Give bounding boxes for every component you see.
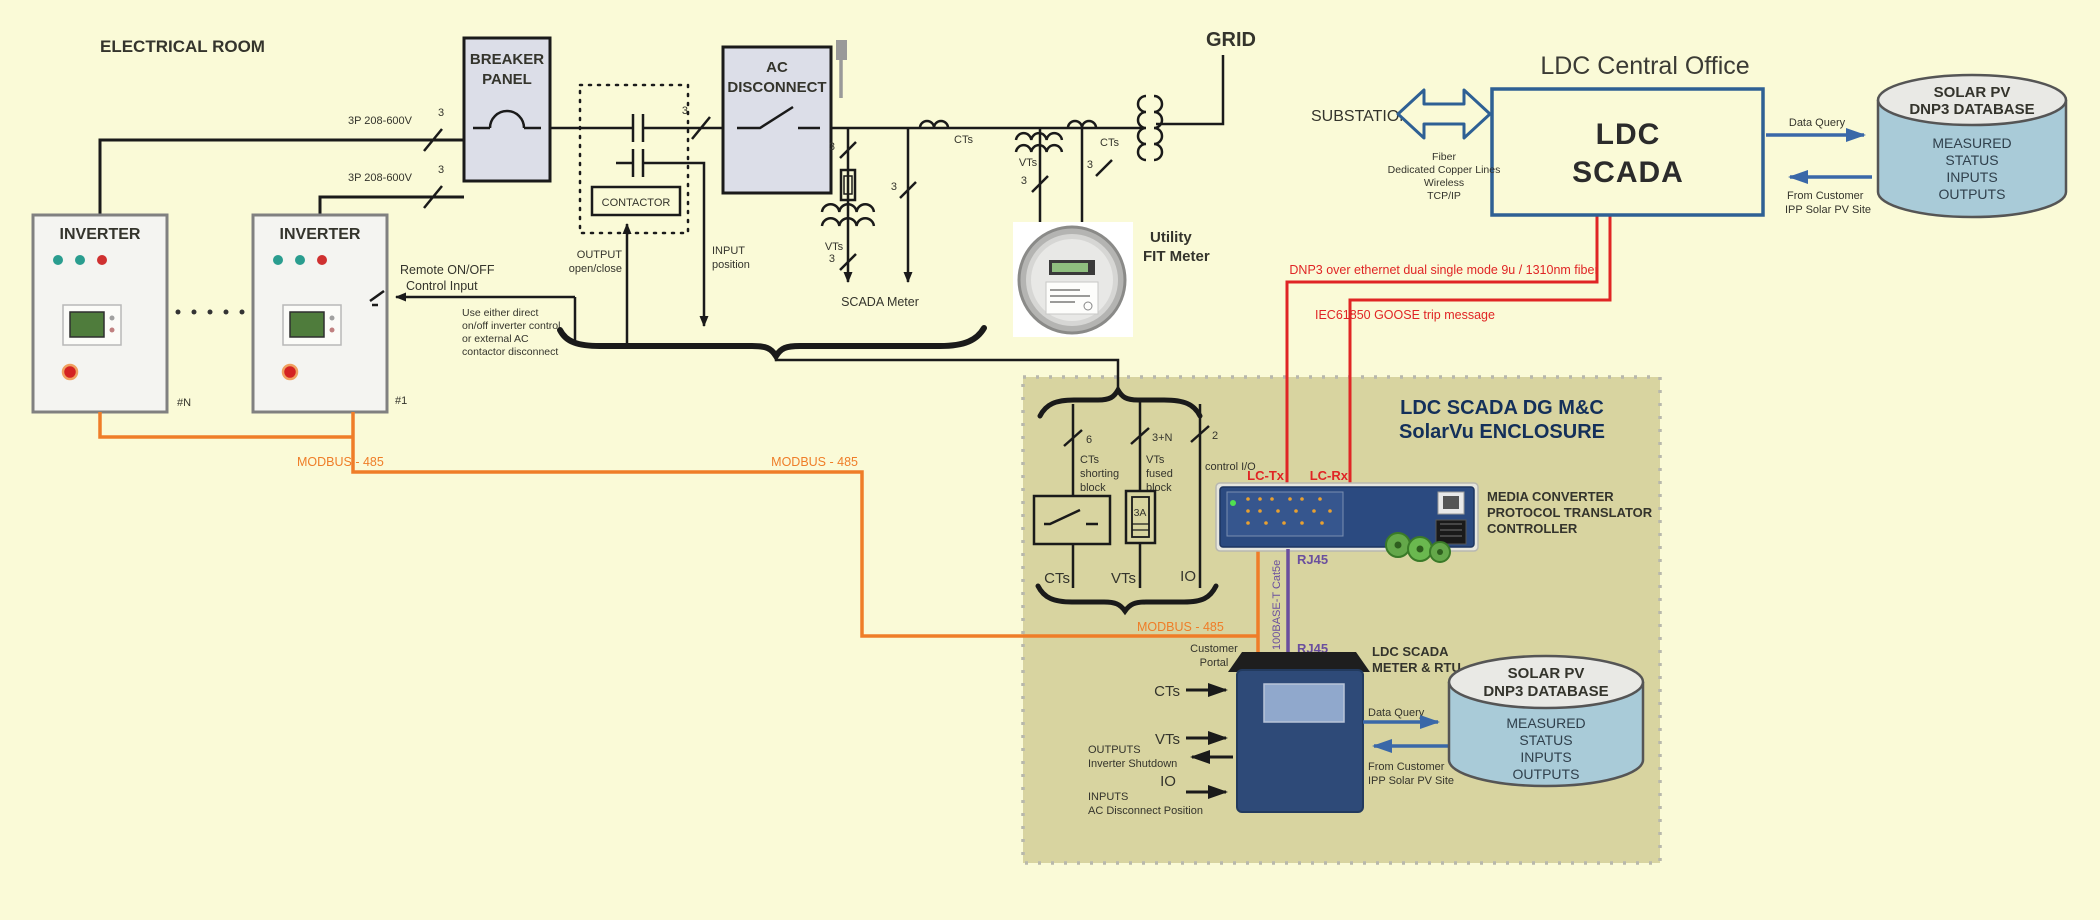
dnp3-fiber-label: DNP3 over ethernet dual single mode 9u /… [1289,263,1598,277]
link-type-4: TCP/IP [1427,190,1461,202]
dnp3-database-enclosure: SOLAR PV DNP3 DATABASE MEASURED STATUS I… [1449,656,1643,786]
data-query-label-bottom: Data Query [1368,707,1425,719]
db-row: OUTPUTS [1939,186,2006,202]
scada-meter-rtu-device [1228,652,1370,812]
input-label-line1: INPUT [712,245,745,257]
modbus-label-3: MODBUS - 485 [1137,620,1224,634]
db-title-line1: SOLAR PV [1934,84,2011,101]
db-row: INPUTS [1946,169,1997,185]
remote-label-line1: Remote ON/OFF [400,263,495,277]
vts-label: VTs [825,241,844,253]
enclosure-title-line1: LDC SCADA DG M&C [1400,397,1604,419]
cts-label: CTs [954,134,973,146]
meter-lcd-digits [1052,263,1088,272]
note-line2: on/off inverter control [462,320,560,332]
vts-block-line2: fused [1146,468,1173,480]
cts-block-line1: CTs [1080,454,1099,466]
feeder-label-1: 3P 208-600V [348,115,413,127]
inverter-stop-button[interactable] [283,365,297,379]
display-dial-icon [110,328,115,333]
led-green-icon [273,255,283,265]
meter-screen [1264,684,1344,722]
phase-count-3: 3 [682,105,688,117]
ac-disconnect-line1: AC [766,59,788,76]
feeder-label-2: 3P 208-600V [348,172,413,184]
ldc-scada-line2: SCADA [1572,156,1684,189]
tap-count: 3 [1021,175,1027,187]
inverter-display-screen [70,312,104,337]
db-row: OUTPUTS [1513,766,1580,782]
db-row: MEASURED [1506,715,1585,731]
note-line4: contactor disconnect [462,346,558,358]
cts-block-line3: block [1080,482,1106,494]
output-label-line2: open/close [569,263,622,275]
db-row: STATUS [1945,152,1998,168]
meter-rtu-label-line2: METER & RTU [1372,660,1461,675]
one-line-diagram: LDC SCADA DG M&C SolarVu ENCLOSURE ELECT… [0,0,2100,920]
remote-label-line2: Control Input [406,279,478,293]
utility-label-line2: FIT Meter [1143,248,1210,265]
led-green-icon [53,255,63,265]
display-dial-icon [330,316,335,321]
led-panel [1227,492,1343,536]
tap-count: 3 [891,181,897,193]
link-type-3: Wireless [1424,177,1464,189]
rj45-label-top: RJ45 [1297,552,1328,567]
db-row: STATUS [1519,732,1572,748]
from-customer-line2-top: IPP Solar PV Site [1785,204,1871,216]
customer-portal-line1: Customer [1190,643,1238,655]
ac-disconnect: AC DISCONNECT [723,40,847,193]
from-customer-line1-bottom: From Customer [1368,761,1445,773]
inputs-label-line1: INPUTS [1088,791,1128,803]
input-label-line2: position [712,259,750,271]
breaker-panel-line1: BREAKER [470,51,544,68]
qty-vts: 3+N [1152,432,1173,444]
led-green-icon [75,255,85,265]
fuse-rating: 3A [1134,507,1147,519]
qty-io: 2 [1212,430,1218,442]
goose-label: IEC61850 GOOSE trip message [1315,308,1495,322]
db-row: INPUTS [1520,749,1571,765]
inverter-n-title: INVERTER [60,226,141,243]
inverter-n: INVERTER [33,215,167,412]
cat5e-label: 100BASE-T Cat5e [1271,560,1283,650]
lc-rx-label: LC-Rx [1310,468,1349,483]
outputs-label-line1: OUTPUTS [1088,744,1141,756]
from-customer-line1-top: From Customer [1787,190,1864,202]
display-dial-icon [110,316,115,321]
breaker-panel: BREAKER PANEL [464,38,550,181]
media-converter-line2: PROTOCOL TRANSLATOR [1487,505,1653,520]
display-dial-icon [330,328,335,333]
qty-cts: 6 [1086,434,1092,446]
tap-count: 3 [1087,159,1093,171]
inverter-n-tag: #N [177,397,191,409]
inverter-1-title: INVERTER [280,226,361,243]
vts-out-label: VTs [1111,570,1136,587]
modbus-label-2: MODBUS - 485 [771,455,858,469]
meter-rtu-label-line1: LDC SCADA [1372,644,1449,659]
link-type-2: Dedicated Copper Lines [1388,164,1501,176]
inverter-1-tag: #1 [395,395,407,407]
inverter-display-screen [290,312,324,337]
scada-meter-label: SCADA Meter [841,295,919,309]
electrical-room-title: ELECTRICAL ROOM [100,37,265,56]
cts-block-line2: shorting [1080,468,1119,480]
note-line1: Use either direct [462,307,539,319]
from-customer-line2-bottom: IPP Solar PV Site [1368,775,1454,787]
cts-label: CTs [1100,137,1119,149]
media-converter-line3: CONTROLLER [1487,521,1578,536]
db-row: MEASURED [1932,135,2011,151]
led-green-icon [295,255,305,265]
contactor-label: CONTACTOR [602,197,671,209]
db-title-line1: SOLAR PV [1508,665,1585,682]
ldc-scada-line1: LDC [1596,118,1661,151]
dnp3-database-central: SOLAR PV DNP3 DATABASE MEASURED STATUS I… [1878,75,2066,217]
utility-fit-meter-photo [1013,222,1133,337]
tap-count: 3 [829,253,835,265]
db-title-line2: DNP3 DATABASE [1909,101,2034,118]
note-line3: or external AC [462,333,529,345]
disconnect-handle-icon[interactable] [836,40,847,60]
meter-cts-label: CTs [1154,683,1180,700]
cts-out-label: CTs [1044,570,1070,587]
io-out-label: IO [1180,568,1196,585]
breaker-panel-line2: PANEL [482,71,532,88]
tap-count: 3 [829,141,835,153]
usb-port-inner [1443,496,1459,509]
inverter-stop-button[interactable] [63,365,77,379]
vts-block-line1: VTs [1146,454,1165,466]
enclosure-title-line2: SolarVu ENCLOSURE [1399,421,1605,443]
db-title-line2: DNP3 DATABASE [1483,683,1608,700]
customer-portal-line2: Portal [1200,657,1229,669]
led-red-icon [97,255,107,265]
outputs-label-line2: Inverter Shutdown [1088,758,1177,770]
phase-count-2: 3 [438,164,444,176]
meter-vts-label: VTs [1155,731,1180,748]
meter-io-label: IO [1160,773,1176,790]
inverter-1: INVERTER [253,215,387,412]
lc-tx-label: LC-Tx [1247,468,1285,483]
grid-label: GRID [1206,29,1256,51]
link-type-1: Fiber [1432,151,1456,163]
output-label-line1: OUTPUT [577,249,623,261]
central-office-title: LDC Central Office [1540,52,1749,80]
modbus-label-1: MODBUS - 485 [297,455,384,469]
media-converter-device [1216,483,1478,562]
vts-label: VTs [1019,157,1038,169]
inputs-label-line2: AC Disconnect Position [1088,805,1203,817]
led-red-icon [317,255,327,265]
power-led-icon [1230,500,1236,506]
media-converter-line1: MEDIA CONVERTER [1487,489,1614,504]
ac-disconnect-line2: DISCONNECT [727,79,826,96]
data-query-label-top: Data Query [1789,117,1846,129]
phase-count-1: 3 [438,107,444,119]
utility-label-line1: Utility [1150,229,1192,246]
